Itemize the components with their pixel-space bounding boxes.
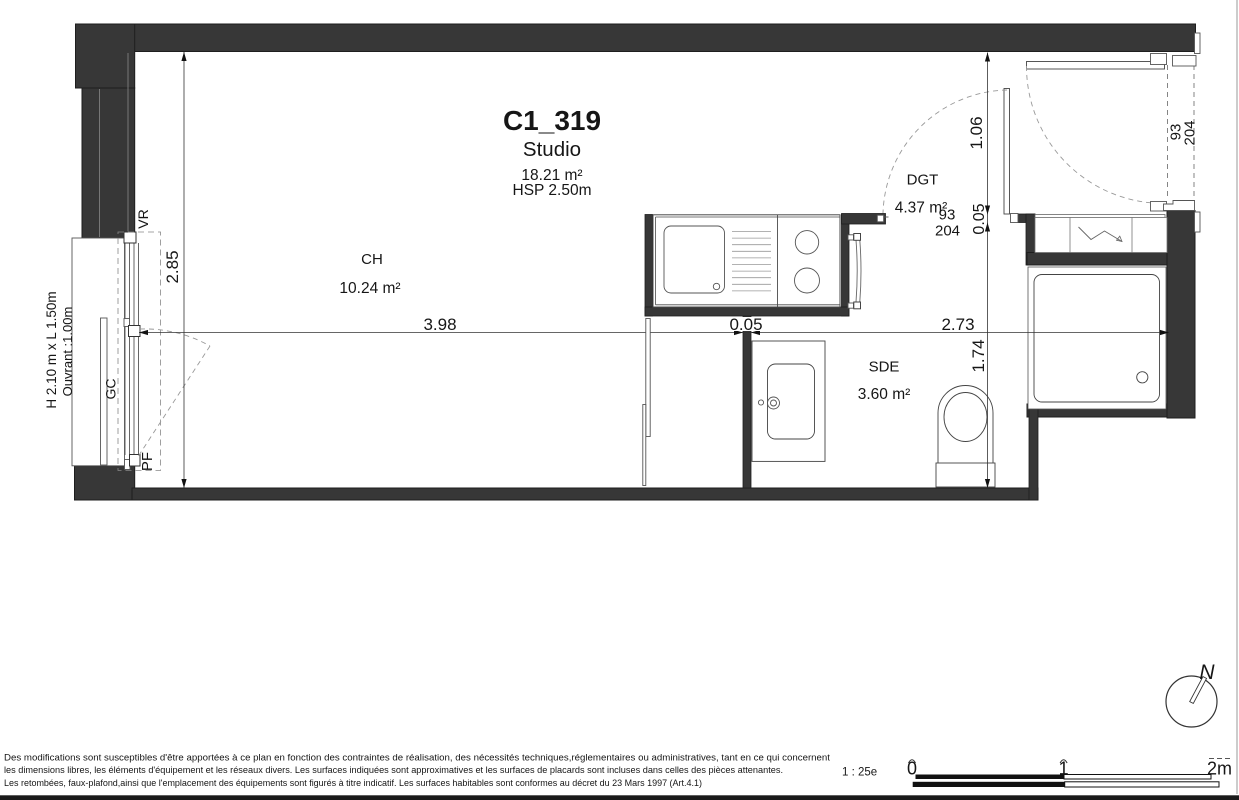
svg-text:204: 204 xyxy=(935,223,960,240)
svg-text:SDE: SDE xyxy=(869,359,900,376)
svg-text:1.06: 1.06 xyxy=(967,116,986,149)
svg-text:DGT: DGT xyxy=(907,172,939,189)
svg-text:H 2.10 m x L 1.50m: H 2.10 m x L 1.50m xyxy=(44,291,59,408)
svg-text:2.73: 2.73 xyxy=(941,315,974,334)
svg-text:3.60 m²: 3.60 m² xyxy=(858,386,911,403)
svg-text:HSP 2.50m: HSP 2.50m xyxy=(513,182,592,199)
svg-text:204: 204 xyxy=(1182,120,1199,145)
svg-text:N: N xyxy=(1199,661,1215,684)
svg-text:Les retombées, faux-plafond,ai: Les retombées, faux-plafond,ainsi que l'… xyxy=(4,778,702,789)
svg-text:1 : 25e: 1 : 25e xyxy=(842,766,877,778)
svg-text:Des modifications sont suscept: Des modifications sont susceptibles d'êt… xyxy=(4,752,830,763)
svg-text:CH: CH xyxy=(361,251,383,268)
svg-text:les dimensions libres, les élé: les dimensions libres, les éléments d'éq… xyxy=(4,765,783,776)
svg-text:93: 93 xyxy=(939,207,956,224)
svg-text:10.24 m²: 10.24 m² xyxy=(339,280,400,297)
svg-text:0.05: 0.05 xyxy=(729,315,762,334)
svg-text:Studio: Studio xyxy=(523,138,581,161)
svg-text:GC: GC xyxy=(103,379,119,400)
svg-text:0: 0 xyxy=(907,759,917,779)
svg-text:3.98: 3.98 xyxy=(423,315,456,334)
svg-text:2m: 2m xyxy=(1207,759,1232,779)
svg-text:C1_319: C1_319 xyxy=(503,105,601,136)
svg-text:2.85: 2.85 xyxy=(163,250,182,283)
svg-text:PF: PF xyxy=(139,452,156,471)
svg-text:1: 1 xyxy=(1059,759,1069,779)
svg-text:0.05: 0.05 xyxy=(971,203,988,234)
svg-text:1.74: 1.74 xyxy=(969,339,988,372)
svg-text:Ouvrant :1.00m: Ouvrant :1.00m xyxy=(60,307,75,397)
svg-text:VR: VR xyxy=(135,209,151,228)
